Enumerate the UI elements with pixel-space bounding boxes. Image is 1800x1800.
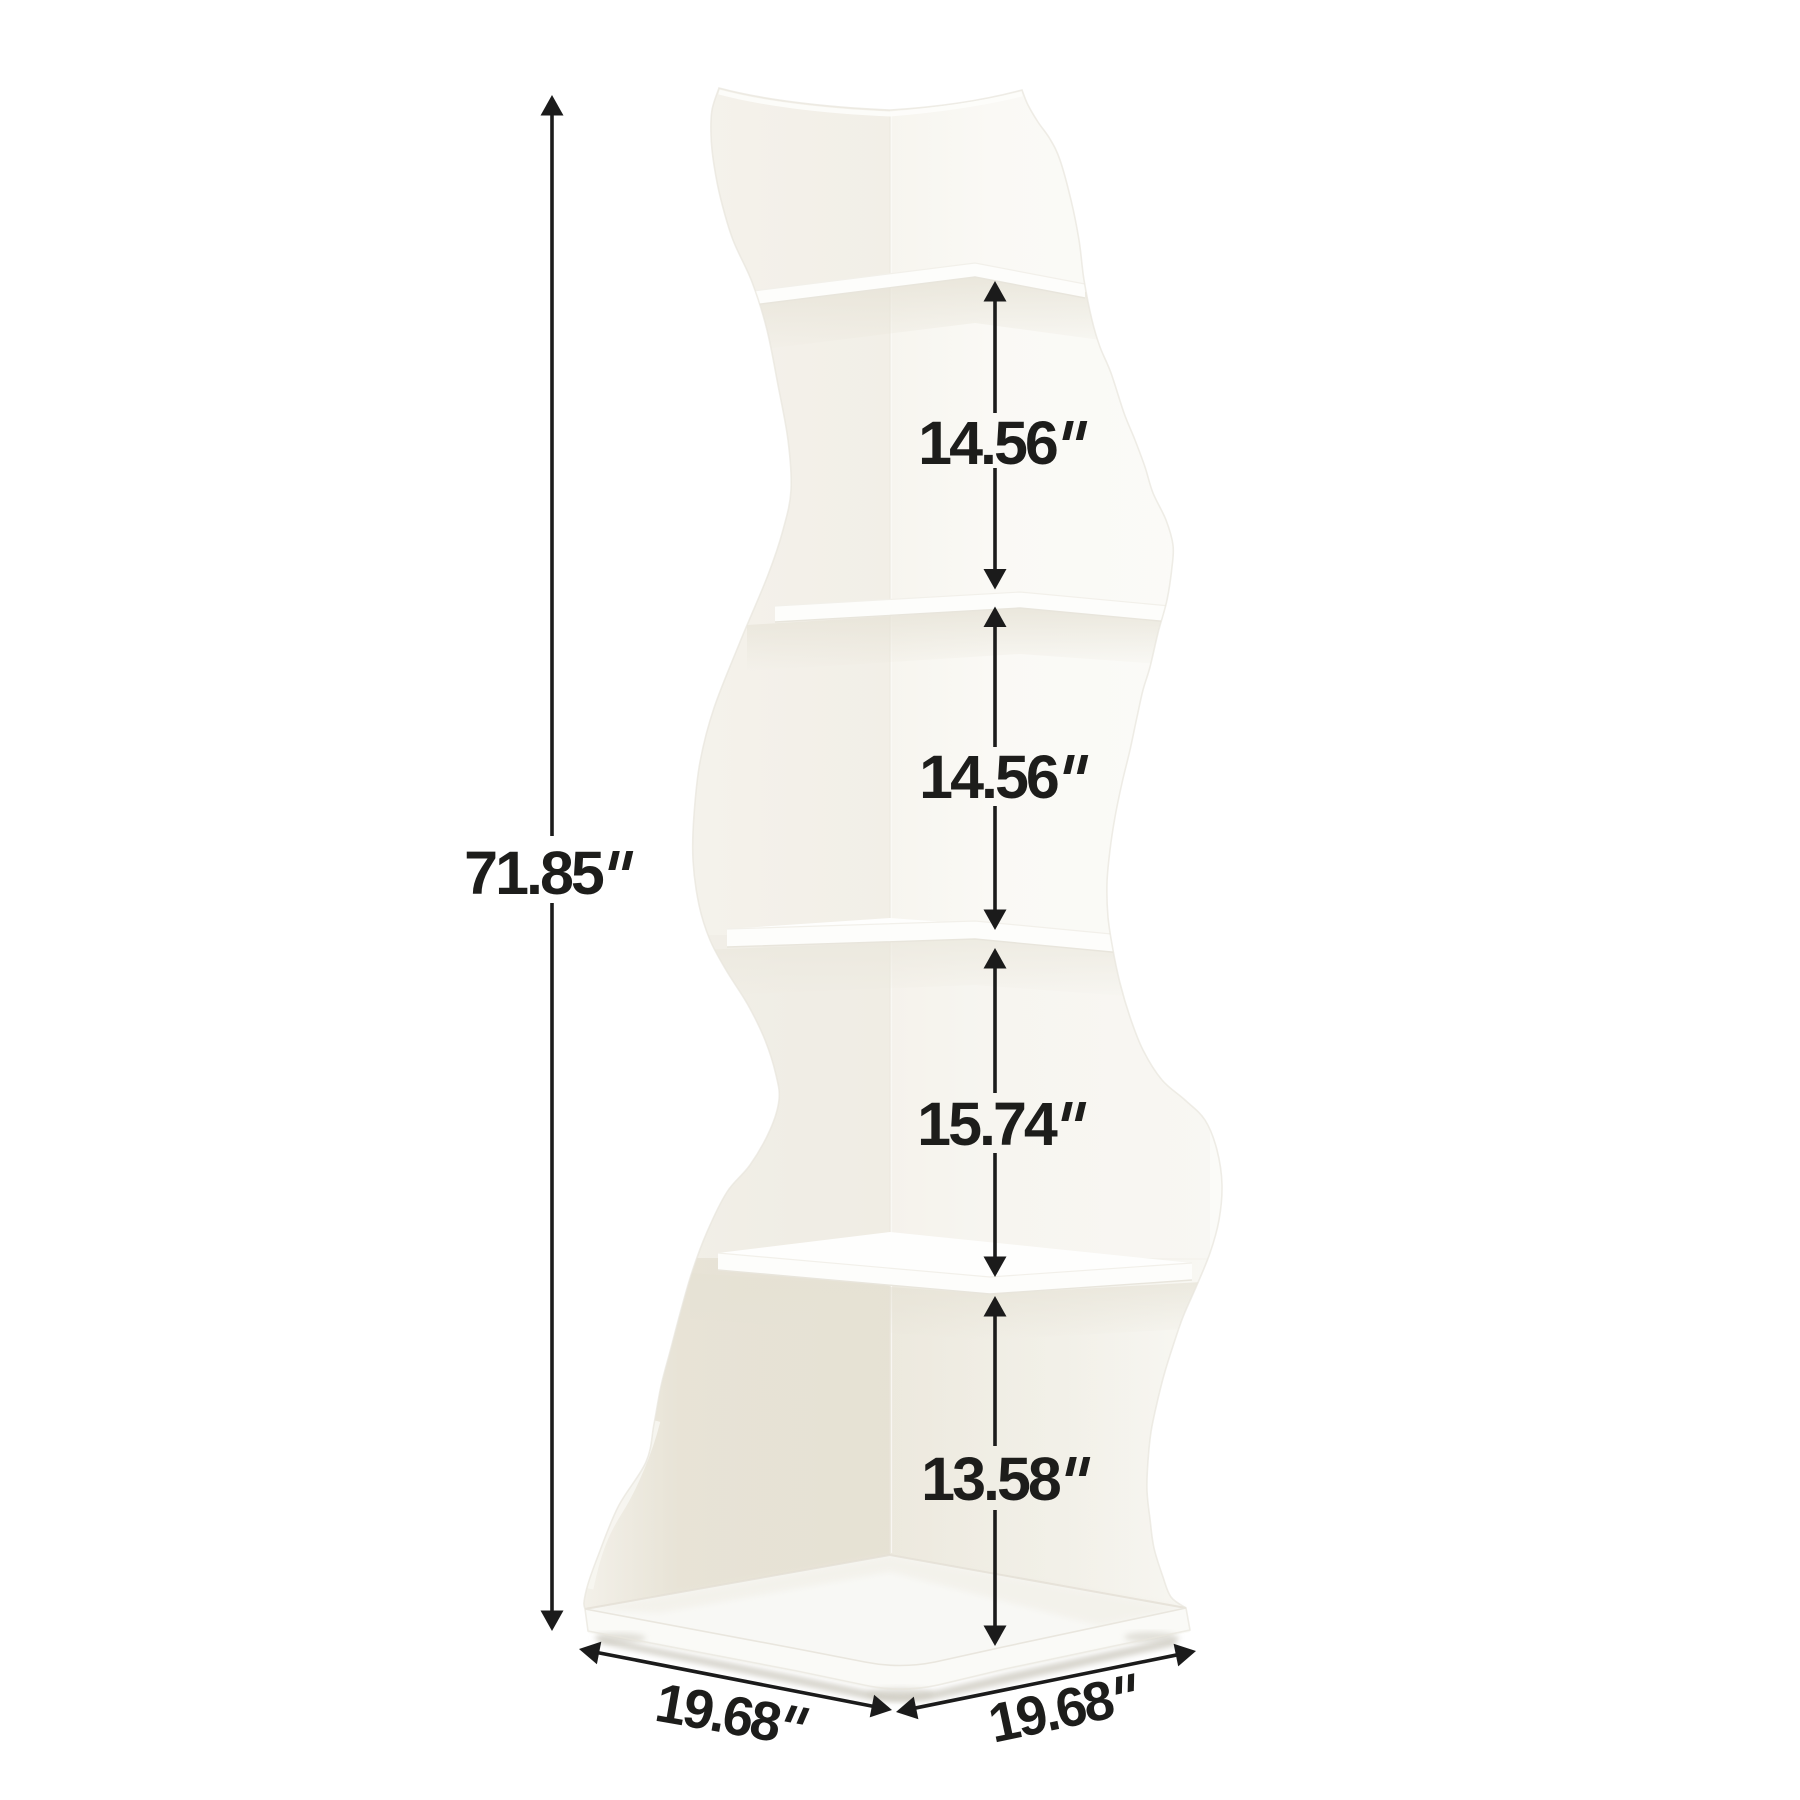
- svg-text:14.56: 14.56: [918, 409, 1057, 477]
- svg-text:13.58: 13.58: [921, 1445, 1061, 1513]
- svg-text:14.56: 14.56: [919, 743, 1058, 811]
- svg-text:15.74: 15.74: [917, 1090, 1058, 1158]
- svg-text:71.85: 71.85: [464, 839, 604, 907]
